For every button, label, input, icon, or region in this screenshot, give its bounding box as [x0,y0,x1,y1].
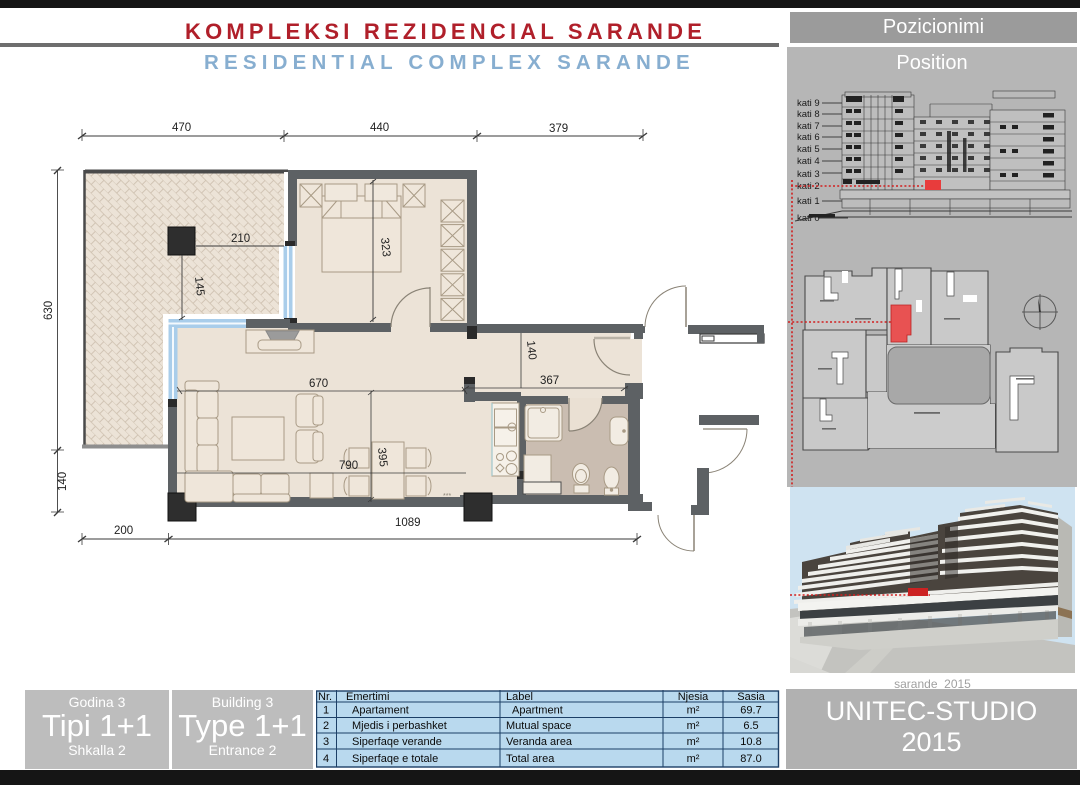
svg-text:Total area: Total area [506,753,555,765]
svg-text:Nr.: Nr. [318,691,332,703]
svg-text:m²: m² [687,753,700,765]
svg-text:210: 210 [231,233,250,245]
svg-text:Sasia: Sasia [737,691,765,703]
svg-text:367: 367 [540,375,559,387]
svg-text:kati 4: kati 4 [797,156,820,167]
svg-text:470: 470 [172,122,191,134]
svg-text:Siperfaqe e totale: Siperfaqe e totale [352,753,438,765]
svg-text:Njesia: Njesia [678,691,709,703]
svg-text:1089: 1089 [395,517,421,529]
svg-text:1: 1 [323,705,329,717]
svg-text:kati 6: kati 6 [797,132,820,143]
svg-text:kati 8: kati 8 [797,109,820,120]
svg-text:87.0: 87.0 [740,753,761,765]
svg-text:Mutual space: Mutual space [506,720,571,732]
svg-text:323: 323 [378,237,392,257]
svg-text:145: 145 [192,276,206,296]
svg-text:140: 140 [57,472,69,491]
svg-text:Veranda area: Veranda area [506,736,573,748]
svg-text:Apartment: Apartment [512,705,563,717]
svg-text:440: 440 [370,122,389,134]
svg-text:m²: m² [687,720,700,732]
svg-text:kati 3: kati 3 [797,169,820,180]
svg-text:Label: Label [506,691,533,703]
svg-text:4: 4 [323,753,329,765]
svg-text:10.8: 10.8 [740,736,761,748]
svg-text:kati 7: kati 7 [797,121,820,132]
svg-text:Apartament: Apartament [352,705,409,717]
svg-text:Emertimi: Emertimi [346,691,389,703]
svg-text:kati 1: kati 1 [797,196,820,207]
svg-text:379: 379 [549,123,568,135]
svg-text:670: 670 [309,378,328,390]
svg-text:395: 395 [375,447,389,467]
svg-text:630: 630 [43,301,55,320]
svg-text:Siperfaqe verande: Siperfaqe verande [352,736,442,748]
svg-text:200: 200 [114,525,133,537]
svg-text:Mjedis i perbashket: Mjedis i perbashket [352,720,447,732]
svg-text:***: *** [443,493,451,500]
svg-text:kati 9: kati 9 [797,98,820,109]
svg-text:m²: m² [687,736,700,748]
svg-text:2: 2 [323,720,329,732]
svg-text:69.7: 69.7 [740,705,761,717]
svg-text:m²: m² [687,705,700,717]
svg-text:140: 140 [524,340,538,360]
svg-text:3: 3 [323,736,329,748]
svg-text:790: 790 [339,460,358,472]
svg-text:6.5: 6.5 [743,720,758,732]
svg-text:kati 5: kati 5 [797,144,820,155]
